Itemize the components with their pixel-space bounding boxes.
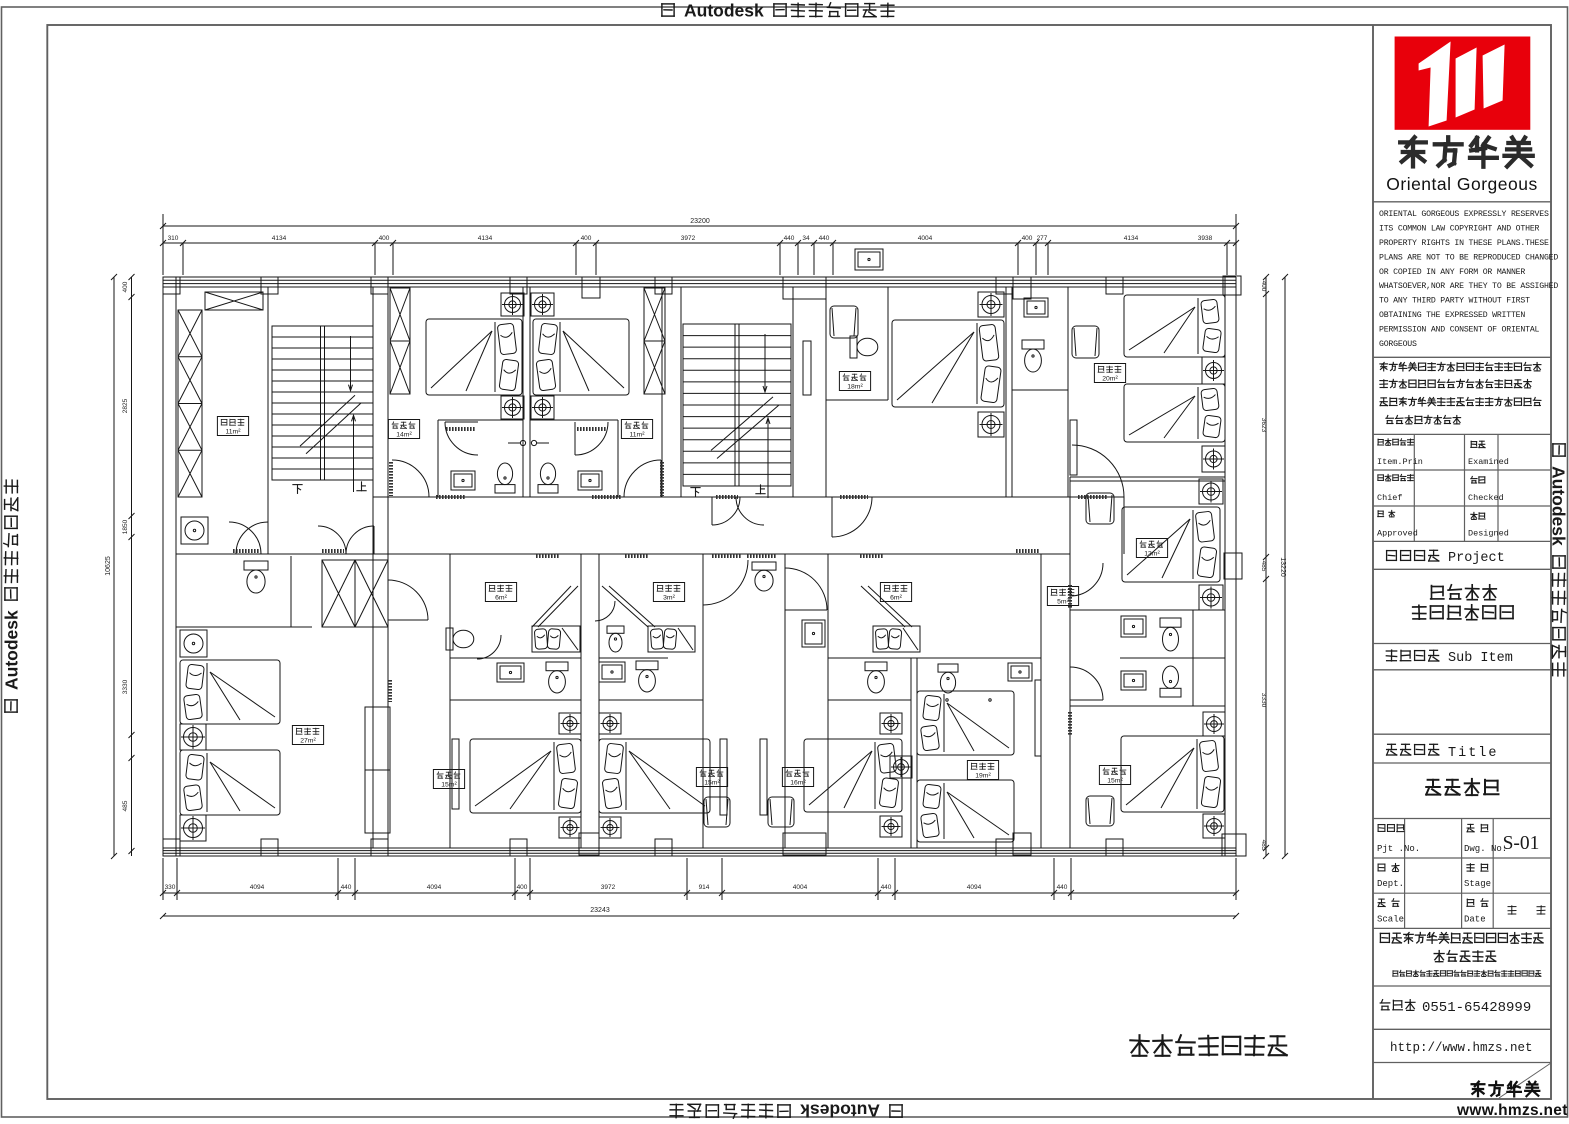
svg-text:Autodesk: Autodesk [2, 610, 22, 690]
svg-text:PERMISSION AND CONSENT OF ORIE: PERMISSION AND CONSENT OF ORIENTAL [1379, 326, 1540, 335]
svg-text:4134: 4134 [478, 235, 493, 242]
svg-text:2825: 2825 [122, 398, 129, 413]
svg-text:4004: 4004 [918, 235, 933, 242]
svg-text:http://www.hmzs.net: http://www.hmzs.net [1390, 1041, 1533, 1055]
svg-text:Dwg. No.: Dwg. No. [1464, 844, 1507, 854]
svg-text:15m²: 15m² [441, 781, 457, 788]
svg-text:3330: 3330 [122, 679, 129, 694]
svg-text:ITS COMMON LAW COPYRIGHT AND O: ITS COMMON LAW COPYRIGHT AND OTHER [1379, 224, 1540, 233]
svg-text:27m²: 27m² [300, 737, 316, 744]
svg-text:4004: 4004 [793, 884, 808, 891]
svg-text:4094: 4094 [967, 884, 982, 891]
svg-text:23243: 23243 [590, 907, 610, 914]
svg-text:Checked: Checked [1468, 493, 1504, 503]
svg-text:400: 400 [581, 235, 592, 242]
svg-text:14m²: 14m² [396, 431, 412, 438]
svg-text:440: 440 [881, 884, 892, 891]
svg-text:Designed: Designed [1468, 528, 1509, 538]
svg-text:S-01: S-01 [1503, 833, 1540, 854]
svg-text:Autodesk: Autodesk [1549, 466, 1569, 546]
svg-text:20m²: 20m² [1102, 375, 1118, 382]
svg-text:400: 400 [379, 235, 390, 242]
svg-text:440: 440 [1057, 884, 1068, 891]
svg-text:6m²: 6m² [495, 594, 507, 601]
svg-text:485: 485 [1260, 840, 1267, 851]
svg-text:Approved: Approved [1377, 528, 1418, 538]
svg-text:277: 277 [1037, 235, 1048, 242]
svg-text:310: 310 [168, 235, 179, 242]
svg-text:16m²: 16m² [790, 779, 806, 786]
svg-text:OBTAINING THE EXPRESSED WRITTE: OBTAINING THE EXPRESSED WRITTEN [1379, 311, 1525, 320]
svg-text:3972: 3972 [601, 884, 616, 891]
svg-text:400: 400 [517, 884, 528, 891]
svg-text:440: 440 [784, 235, 795, 242]
svg-text:19m²: 19m² [975, 772, 991, 779]
svg-text:3972: 3972 [681, 235, 696, 242]
svg-text:www.hmzs.net: www.hmzs.net [1456, 1102, 1568, 1119]
svg-text:3623: 3623 [1260, 418, 1267, 433]
svg-text:4094: 4094 [250, 884, 265, 891]
svg-text:15m²: 15m² [704, 779, 720, 786]
svg-text:Project: Project [1448, 551, 1505, 566]
svg-text:3m²: 3m² [663, 594, 675, 601]
svg-text:330: 330 [165, 884, 176, 891]
svg-text:Pjt .No.: Pjt .No. [1377, 844, 1420, 854]
svg-text:WHATSOEVER,NOR ARE THEY TO BE: WHATSOEVER,NOR ARE THEY TO BE ASSIGHED [1379, 282, 1558, 291]
svg-text:11m²: 11m² [630, 431, 646, 438]
svg-text:1850: 1850 [122, 519, 129, 534]
svg-text:Examined: Examined [1468, 457, 1509, 467]
svg-text:Autodesk: Autodesk [800, 1101, 880, 1121]
svg-text:485: 485 [1260, 561, 1267, 572]
svg-text:Oriental Gorgeous: Oriental Gorgeous [1386, 174, 1538, 194]
svg-text:4134: 4134 [272, 235, 287, 242]
svg-text:440: 440 [819, 235, 830, 242]
svg-text:23200: 23200 [690, 218, 710, 225]
svg-text:440: 440 [341, 884, 352, 891]
svg-text:Title: Title [1448, 746, 1499, 761]
svg-text:13220: 13220 [1279, 557, 1286, 577]
svg-text:GORGEOUS: GORGEOUS [1379, 340, 1417, 349]
svg-text:Date: Date [1464, 914, 1486, 924]
svg-text:Autodesk: Autodesk [684, 1, 764, 21]
svg-text:400: 400 [122, 281, 129, 292]
svg-text:5m²: 5m² [1057, 598, 1069, 605]
svg-text:Scale: Scale [1377, 914, 1404, 924]
svg-text:15m²: 15m² [1107, 777, 1123, 784]
svg-text:Stage: Stage [1464, 879, 1491, 889]
svg-text:13m²: 13m² [1144, 550, 1160, 557]
svg-text:Chief: Chief [1377, 493, 1403, 503]
svg-text:PROPERTY RIGHTS IN THESE PLANS: PROPERTY RIGHTS IN THESE PLANS.THESE [1379, 239, 1549, 248]
svg-text:10625: 10625 [105, 556, 112, 576]
svg-text:Sub Item: Sub Item [1448, 651, 1513, 666]
svg-text:3330: 3330 [1260, 693, 1267, 708]
svg-text:18m²: 18m² [847, 383, 863, 390]
svg-text:Item.Prin: Item.Prin [1377, 457, 1423, 467]
svg-text:4134: 4134 [1124, 235, 1139, 242]
svg-text:0551-65428999: 0551-65428999 [1422, 1000, 1531, 1016]
svg-text:PLANS ARE NOT TO BE REPRODUCED: PLANS ARE NOT TO BE REPRODUCED CHANGED [1379, 253, 1558, 262]
svg-text:400: 400 [1260, 281, 1267, 292]
svg-text:TO ANY THIRD PARTY WITHOUT FIR: TO ANY THIRD PARTY WITHOUT FIRST [1379, 297, 1530, 306]
svg-text:11m²: 11m² [226, 428, 242, 435]
svg-text:4094: 4094 [427, 884, 442, 891]
svg-text:Dept.: Dept. [1377, 879, 1404, 889]
svg-text:ORIENTAL GORGEOUS EXPRESSLY RE: ORIENTAL GORGEOUS EXPRESSLY RESERVES [1379, 210, 1549, 219]
svg-text:34: 34 [802, 235, 810, 242]
svg-text:485: 485 [122, 800, 129, 811]
svg-text:914: 914 [699, 884, 710, 891]
svg-text:3938: 3938 [1198, 235, 1213, 242]
svg-text:OR COPIED IN ANY FORM OR MANNE: OR COPIED IN ANY FORM OR MANNER [1379, 268, 1525, 277]
svg-text:400: 400 [1022, 235, 1033, 242]
svg-text:6m²: 6m² [890, 594, 902, 601]
